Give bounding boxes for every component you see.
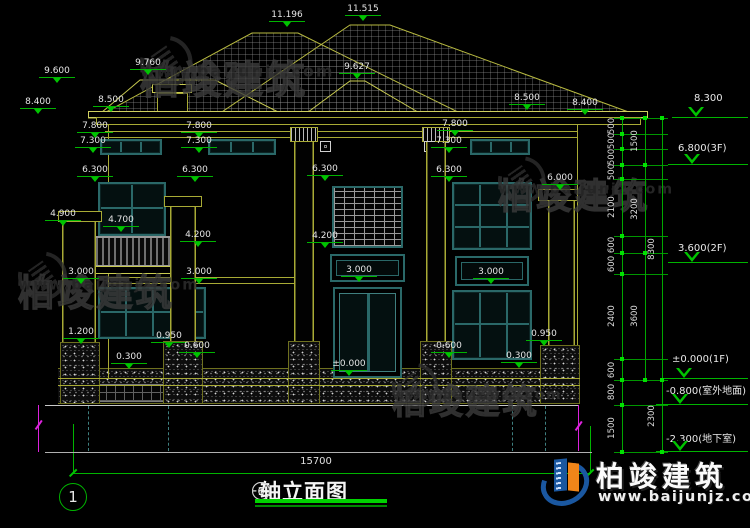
dim-label: 8.500 [501,93,553,110]
level-label: 8.300 [694,93,723,104]
elevation-canvas: 15700 1 1 - 6 轴立面图 柏竣建筑 www.baijunjz.com… [0,0,750,528]
chain-dim-value: 2300 [647,394,657,438]
chain-tick [620,177,624,181]
dim-label: 0.950 [518,329,570,346]
level-line [668,262,748,263]
dim-label: 7.800 [429,119,481,136]
dim-label: 11.196 [261,10,313,27]
chain-tick [660,116,664,120]
pilaster-left-capital [290,127,318,142]
basement-wall-dash-4 [545,406,546,451]
level-label: ±0.000(1F) [672,354,729,365]
chain-tick [643,116,647,120]
basement-floor-line [45,452,592,453]
chain-tick [620,357,624,361]
dim-label: 3.000 [173,267,225,284]
chain-tick [620,403,624,407]
level-line [672,117,748,118]
dim-label: 4.700 [95,215,147,232]
dim-label: 0.300 [493,351,545,368]
overall-width-value: 15700 [288,456,344,467]
chain-dim-value: 3600 [630,294,640,338]
break-mark-right [578,405,579,451]
chain-vline [662,118,663,452]
level-line [668,164,748,165]
dim-label: 8.400 [559,98,611,115]
dim-label: 7.300 [67,136,119,153]
level-marker-triangle [684,154,700,164]
level-marker-triangle [688,107,704,117]
title-underline-thin [255,505,387,507]
pilaster-left-pedestal [288,341,320,404]
axis-bubble-1: 1 [59,483,87,511]
chain-tick [620,378,624,382]
level-marker-triangle [684,252,700,262]
basement-wall-dash-2 [168,406,169,451]
level-label: 6.800(3F) [678,143,727,154]
dim-label: 6.300 [423,165,475,182]
dim-label: 6.000 [534,173,586,190]
brand-logo: 柏竣建筑 www.baijunjz.com [538,453,750,523]
level-line [656,404,748,405]
dim-label: 9.627 [331,62,383,79]
dim-label: 0.600 [423,341,475,358]
dim-label: 11.515 [337,4,389,21]
dim-label: 4.200 [299,231,351,248]
column-left-capital [164,196,202,207]
chain-vline [622,118,623,452]
dim-label: 6.300 [169,165,221,182]
level-marker-triangle [672,394,688,404]
chain-dim-value: 8300 [647,227,657,271]
dim-label: 9.760 [122,58,174,75]
dim-label: 4.200 [172,230,224,247]
dim-label: 7.300 [423,136,475,153]
basement-wall-dash-3 [512,406,513,451]
column-right-pedestal [540,345,580,404]
chain-tick [620,116,624,120]
deco-square-left [320,141,331,152]
balcony-railing [84,236,170,266]
dim-label: 9.600 [31,66,83,83]
chimney-cap [152,84,192,93]
title-underline-thick [255,499,387,503]
chain-dim-value: 2400 [607,294,617,338]
chain-dim-value: 600 [607,242,617,286]
dim-label: 0.600 [171,341,223,358]
break-mark-left [38,405,39,452]
column-right-shaft [548,201,575,345]
overall-dim-line [73,473,591,474]
brand-building-icon [554,458,567,491]
axis-line-1 [73,424,74,473]
chain-dim-value: 1500 [630,119,640,163]
brand-url: www.baijunjz.com [598,489,750,505]
dim-label: 3.000 [55,267,107,284]
dim-label: 8.500 [85,95,137,112]
level-marker-triangle [672,441,688,451]
brand-building-icon-2 [568,462,579,491]
level-line [656,451,748,452]
chain-tick [620,147,624,151]
chain-dim-value: 3200 [630,187,640,231]
chain-dim-value: 1500 [607,406,617,450]
pier-left-base [60,342,100,404]
dim-label: 6.300 [69,165,121,182]
dim-label: 1.200 [55,327,107,344]
chain-tick [660,378,664,382]
chain-tick [620,132,624,136]
chain-tick [620,163,624,167]
dim-label: 4.900 [37,209,89,226]
wall-edge-right [577,125,578,378]
dim-label: 3.000 [333,265,385,282]
level-line [660,378,748,379]
chain-tick [643,163,647,167]
chain-tick [620,251,624,255]
basement-wall-dash-1 [88,406,89,451]
dim-label: 6.300 [299,164,351,181]
plinth-line-upper [58,378,580,379]
title-axis-to-bubble: 6 [252,482,270,500]
dim-label: 7.300 [173,136,225,153]
chain-tick [643,378,647,382]
chain-tick [620,272,624,276]
ground-line [45,405,578,406]
dim-label: 8.400 [12,97,64,114]
window-2f-right [452,182,532,250]
dim-label: ±0.000 [323,359,375,376]
chain-vline [645,118,646,380]
column-right-capital [538,189,578,201]
dim-label: 0.300 [103,352,155,369]
axis-bubble-label: 1 [68,488,78,506]
plinth-line-lower [58,385,580,386]
strip-window-right [470,139,530,155]
level-marker-triangle [676,368,692,378]
dim-label: 3.000 [465,267,517,284]
chain-tick [620,234,624,238]
